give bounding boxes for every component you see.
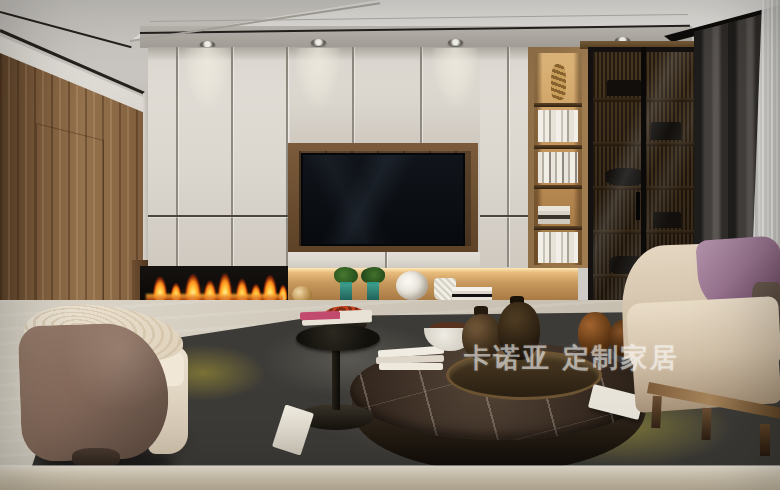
- rope-ornament: [551, 64, 566, 100]
- stacked-books: [538, 206, 570, 224]
- side-table-top: [296, 325, 380, 351]
- shelf-board: [534, 226, 582, 230]
- tv-screen: [301, 153, 465, 246]
- book: [379, 363, 443, 370]
- book-stack: [452, 287, 492, 300]
- door-hgap: [480, 215, 530, 217]
- shelf-board: [534, 185, 582, 189]
- sofa-leg: [651, 396, 662, 428]
- table-book-stack: [376, 348, 446, 376]
- door-gap: [385, 252, 387, 268]
- downlight-icon: [448, 39, 463, 46]
- shelf-board: [534, 145, 582, 149]
- sofa-leg: [701, 408, 711, 440]
- glass-vase: [340, 282, 352, 302]
- flip-door-row: [288, 252, 480, 268]
- lit-display-shelf: [288, 268, 578, 300]
- watermark-text: 卡诺亚 定制家居: [464, 340, 678, 376]
- living-room-photo: 卡诺亚 定制家居: [0, 0, 780, 490]
- downlight-icon: [311, 39, 326, 46]
- glass-vase: [367, 282, 379, 302]
- door-gap: [507, 47, 509, 267]
- light-cone: [178, 48, 236, 140]
- light-cone: [289, 48, 347, 140]
- cabinet-right-doors: [480, 47, 530, 267]
- door-gap: [420, 47, 422, 143]
- door-handle: [636, 192, 640, 220]
- side-table-column: [332, 348, 340, 410]
- books-row: [538, 152, 578, 183]
- armchair-plinth: [72, 448, 120, 468]
- books-row: [538, 232, 578, 263]
- books-row: [538, 110, 578, 142]
- shelf-board: [534, 103, 582, 107]
- white-sculpture-vase: [396, 271, 428, 300]
- linear-fireplace: [140, 266, 290, 304]
- armchair-body: [18, 321, 171, 462]
- door-hgap: [148, 215, 290, 217]
- light-cone: [426, 48, 484, 140]
- sofa-leg: [760, 424, 770, 456]
- foreground-ottoman-edge: [0, 466, 780, 490]
- door-gap: [352, 47, 354, 143]
